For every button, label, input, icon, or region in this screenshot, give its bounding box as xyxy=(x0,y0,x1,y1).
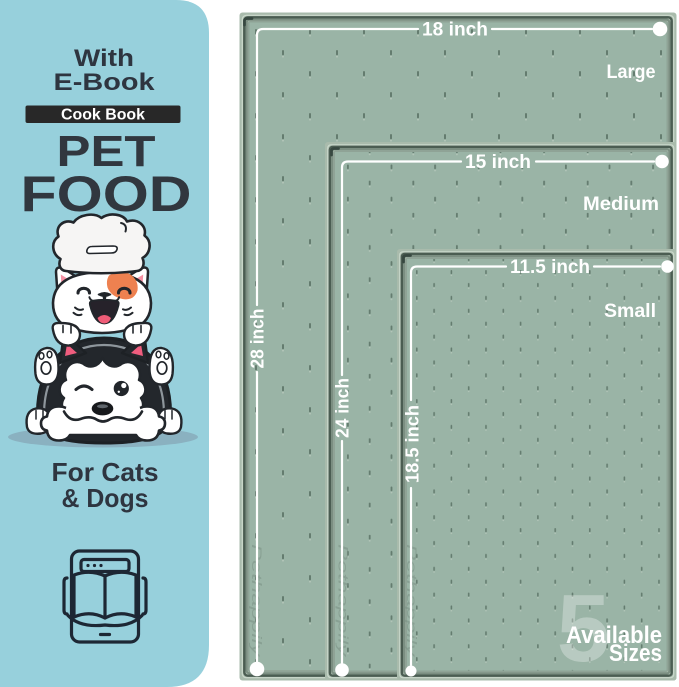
svg-text:Pethappily: Pethappily xyxy=(336,544,352,658)
svg-text:E-Book: E-Book xyxy=(54,69,156,96)
svg-text:& Dogs: & Dogs xyxy=(62,483,149,513)
svg-text:18.5 inch: 18.5 inch xyxy=(403,405,423,483)
svg-text:18 inch: 18 inch xyxy=(422,19,488,41)
svg-text:Small: Small xyxy=(604,300,656,322)
svg-text:Sizes: Sizes xyxy=(609,640,662,667)
svg-text:11.5 inch: 11.5 inch xyxy=(510,256,590,278)
svg-text:Large: Large xyxy=(607,61,656,83)
svg-text:15 inch: 15 inch xyxy=(465,151,531,173)
svg-text:Cook Book: Cook Book xyxy=(61,107,145,124)
svg-text:24 inch: 24 inch xyxy=(333,378,353,438)
svg-text:28 inch: 28 inch xyxy=(248,309,268,369)
svg-text:Medium: Medium xyxy=(583,193,659,215)
svg-text:With: With xyxy=(74,45,134,72)
svg-text:FOOD: FOOD xyxy=(21,166,192,222)
